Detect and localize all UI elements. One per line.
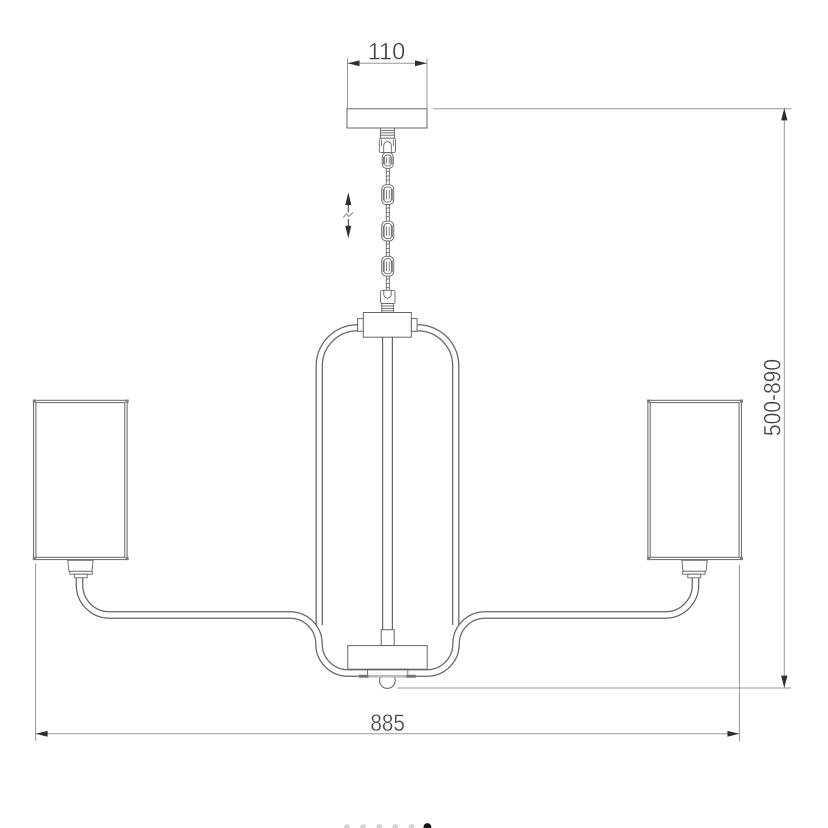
svg-text:885: 885	[370, 710, 405, 737]
svg-text:110: 110	[368, 39, 406, 66]
svg-text:500-890: 500-890	[759, 359, 786, 436]
